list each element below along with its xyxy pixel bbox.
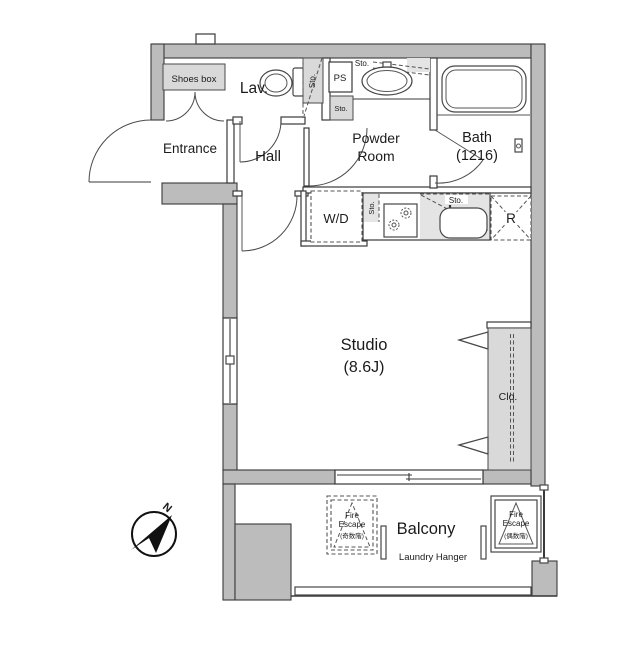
storage-column-label: Sto.: [308, 74, 317, 88]
wall-left-mid: [223, 204, 237, 318]
wall-top-notch: [196, 34, 215, 44]
powder-sink-tap: [383, 62, 391, 67]
pipe-space-label: PS: [334, 73, 347, 84]
washer-dryer-label: W/D: [323, 211, 348, 226]
powder-sink-outer: [362, 67, 412, 95]
wall-studio-bottom-right: [483, 470, 531, 484]
lavatory-label: Lav.: [240, 80, 268, 97]
powder-upper-cabinet-shade: [407, 58, 430, 72]
balcony-gutter: [295, 587, 531, 595]
window-balcony-sliding: [335, 470, 483, 484]
studio-label: Studio: [341, 336, 388, 354]
toilet-tank: [293, 68, 304, 96]
balcony-label: Balcony: [397, 520, 456, 538]
bathtub-outer: [442, 66, 526, 112]
kitchen-storage-label: Sto.: [449, 196, 463, 205]
laundry-hanger-label: Laundry Hanger: [399, 552, 467, 563]
studio-size-label: (8.6J): [344, 359, 385, 376]
closet-label: Clo.: [499, 391, 518, 403]
wall-left-lower: [223, 404, 237, 472]
bath-control-icon: [515, 139, 522, 152]
kitchen-sink-basin: [440, 208, 487, 238]
shoes-box-label: Shoes box: [172, 74, 217, 85]
laundry-pole-left: [381, 526, 386, 559]
storage-box-label: Sto.: [334, 104, 347, 113]
window-left-lock: [226, 356, 234, 364]
balcony-railing-post-top: [540, 485, 548, 490]
hall-label: Hall: [255, 148, 281, 165]
bathtub-icon: [437, 66, 530, 115]
powder-door-leaf: [304, 128, 309, 186]
wall-balcony-left: [223, 484, 235, 600]
fire-escape-left-label-1: Fire: [345, 511, 359, 520]
wall-closet-top: [487, 322, 531, 328]
fire-escape-right-label-1: Fire: [509, 510, 523, 519]
wall-hall-bottom-left: [233, 191, 242, 196]
bath-label: Bath: [462, 130, 492, 146]
bath-control-panel: [515, 139, 522, 152]
powder-room-label-2: Room: [357, 148, 394, 164]
floor-plan: N Shoes box Entrance Lav. Hall PS Sto. S…: [0, 0, 640, 640]
wall-studio-bottom-left: [223, 470, 335, 484]
wall-top: [153, 44, 531, 58]
wall-powder-bath-divider: [430, 58, 437, 130]
wall-left-upper: [151, 44, 164, 120]
wall-wd-niche-left: [301, 191, 306, 246]
kitchen-storage-strip-label: Sto.: [367, 201, 376, 214]
fire-escape-left-floors-label: (奇数階): [340, 531, 364, 540]
bath-size-label: (1216): [456, 148, 498, 164]
kitchen-sink-icon: [440, 205, 487, 238]
wall-balcony-block-right: [532, 561, 557, 596]
laundry-pole-right: [481, 526, 486, 559]
balcony-railing-post-bottom: [540, 558, 548, 563]
wall-lav-stub-left: [233, 117, 242, 124]
fire-escape-left-label-2: Escape: [339, 520, 366, 529]
wall-right: [531, 44, 545, 486]
floor-plan-page: N Shoes box Entrance Lav. Hall PS Sto. S…: [0, 0, 640, 640]
wall-bath-door-stub: [430, 176, 437, 188]
entrance-label: Entrance: [163, 141, 217, 156]
fire-escape-right-floors-label: (偶数階): [504, 531, 528, 540]
window-left: [223, 318, 237, 404]
wall-balcony-block-left: [235, 524, 291, 600]
stove-top: [384, 204, 417, 237]
wall-entrance-hall: [227, 120, 234, 183]
wall-lav-stub-right: [281, 117, 305, 124]
wall-entrance-step: [162, 183, 237, 204]
stove-icon: [384, 204, 417, 237]
refrigerator-label: R: [506, 211, 516, 226]
powder-room-label-1: Powder: [352, 130, 400, 146]
fire-escape-right-label-2: Escape: [503, 519, 530, 528]
powder-storage-label: Sto.: [355, 59, 369, 68]
